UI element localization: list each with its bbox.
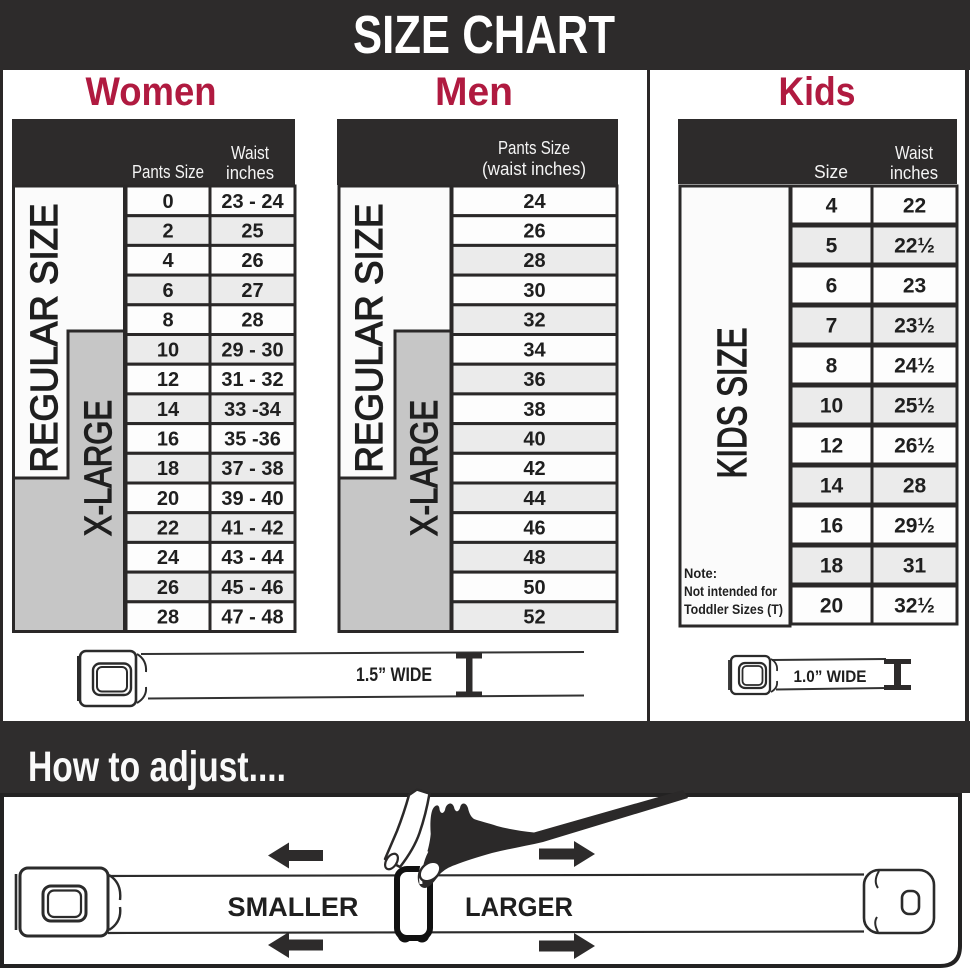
svg-text:6: 6 [826, 274, 838, 297]
svg-text:LARGER: LARGER [465, 892, 573, 922]
svg-text:28: 28 [241, 310, 263, 332]
svg-text:0: 0 [162, 191, 173, 213]
svg-text:39 - 40: 39 - 40 [221, 488, 283, 510]
svg-text:(waist inches): (waist inches) [482, 159, 586, 179]
svg-text:12: 12 [820, 434, 843, 457]
svg-text:38: 38 [523, 399, 545, 421]
svg-text:6: 6 [162, 280, 173, 302]
svg-text:REGULAR SIZE: REGULAR SIZE [349, 204, 391, 473]
svg-text:23½: 23½ [894, 314, 935, 337]
svg-text:29½: 29½ [894, 514, 935, 537]
svg-text:Men: Men [435, 70, 513, 114]
svg-text:1.0” WIDE: 1.0” WIDE [794, 667, 867, 686]
svg-text:5: 5 [826, 234, 838, 257]
svg-text:4: 4 [826, 194, 838, 217]
svg-text:7: 7 [826, 314, 838, 337]
svg-text:46: 46 [523, 518, 545, 540]
svg-text:SMALLER: SMALLER [228, 892, 359, 922]
svg-text:52: 52 [523, 607, 545, 629]
svg-text:23 - 24: 23 - 24 [221, 191, 284, 213]
svg-text:43 - 44: 43 - 44 [221, 547, 284, 569]
svg-text:Toddler Sizes (T): Toddler Sizes (T) [684, 601, 783, 617]
svg-text:20: 20 [820, 594, 843, 617]
svg-text:Pants Size: Pants Size [132, 162, 204, 182]
svg-text:25½: 25½ [894, 394, 935, 417]
svg-text:26½: 26½ [894, 434, 935, 457]
svg-text:8: 8 [826, 354, 838, 377]
svg-text:4: 4 [162, 250, 174, 272]
svg-text:31: 31 [903, 554, 927, 577]
svg-text:Note:: Note: [684, 565, 717, 581]
svg-text:35 -36: 35 -36 [224, 429, 281, 451]
svg-text:32½: 32½ [894, 594, 935, 617]
svg-text:X-LARGE: X-LARGE [78, 400, 120, 536]
svg-text:22: 22 [903, 194, 926, 217]
svg-text:26: 26 [523, 221, 545, 243]
svg-text:26: 26 [241, 250, 263, 272]
svg-text:50: 50 [523, 577, 545, 599]
svg-text:48: 48 [523, 547, 545, 569]
svg-text:8: 8 [162, 310, 173, 332]
svg-text:X-LARGE: X-LARGE [404, 400, 446, 536]
svg-text:32: 32 [523, 310, 545, 332]
svg-text:28: 28 [523, 250, 545, 272]
svg-text:Women: Women [86, 70, 217, 114]
svg-text:14: 14 [820, 474, 844, 497]
svg-text:1.5” WIDE: 1.5” WIDE [356, 665, 432, 686]
svg-text:KIDS SIZE: KIDS SIZE [709, 328, 755, 479]
svg-text:Kids: Kids [779, 70, 856, 114]
svg-text:16: 16 [157, 429, 179, 451]
svg-text:Waist: Waist [231, 143, 269, 163]
svg-text:47 - 48: 47 - 48 [221, 607, 283, 629]
svg-text:18: 18 [820, 554, 844, 577]
svg-text:28: 28 [157, 607, 179, 629]
svg-text:36: 36 [523, 369, 545, 391]
svg-text:22½: 22½ [894, 234, 935, 257]
svg-text:24: 24 [523, 191, 546, 213]
svg-text:41 - 42: 41 - 42 [221, 518, 283, 540]
svg-text:40: 40 [523, 429, 545, 451]
svg-text:24½: 24½ [894, 354, 935, 377]
svg-text:31 - 32: 31 - 32 [221, 369, 283, 391]
svg-text:2: 2 [162, 221, 173, 243]
svg-text:34: 34 [523, 339, 546, 361]
svg-text:How to adjust....: How to adjust.... [28, 743, 286, 791]
svg-text:24: 24 [157, 547, 180, 569]
svg-text:Not intended for: Not intended for [684, 583, 777, 599]
svg-text:44: 44 [523, 488, 546, 510]
svg-text:20: 20 [157, 488, 179, 510]
svg-text:25: 25 [241, 221, 263, 243]
svg-text:27: 27 [241, 280, 263, 302]
svg-text:Size: Size [814, 162, 848, 182]
svg-text:14: 14 [157, 399, 180, 421]
svg-text:18: 18 [157, 458, 179, 480]
svg-text:inches: inches [890, 163, 938, 183]
svg-text:37 - 38: 37 - 38 [221, 458, 283, 480]
svg-text:33 -34: 33 -34 [224, 399, 282, 421]
svg-text:Pants Size: Pants Size [498, 138, 570, 158]
svg-text:45 - 46: 45 - 46 [221, 577, 283, 599]
svg-text:26: 26 [157, 577, 179, 599]
svg-text:Waist: Waist [895, 143, 933, 163]
svg-text:30: 30 [523, 280, 545, 302]
svg-text:28: 28 [903, 474, 927, 497]
svg-text:16: 16 [820, 514, 843, 537]
svg-text:22: 22 [157, 518, 179, 540]
svg-text:29 - 30: 29 - 30 [221, 339, 283, 361]
svg-text:SIZE CHART: SIZE CHART [353, 5, 615, 65]
svg-text:42: 42 [523, 458, 545, 480]
svg-text:12: 12 [157, 369, 179, 391]
svg-text:10: 10 [157, 339, 179, 361]
svg-text:inches: inches [226, 163, 274, 183]
svg-text:23: 23 [903, 274, 926, 297]
svg-text:10: 10 [820, 394, 843, 417]
svg-text:REGULAR SIZE: REGULAR SIZE [24, 204, 66, 473]
